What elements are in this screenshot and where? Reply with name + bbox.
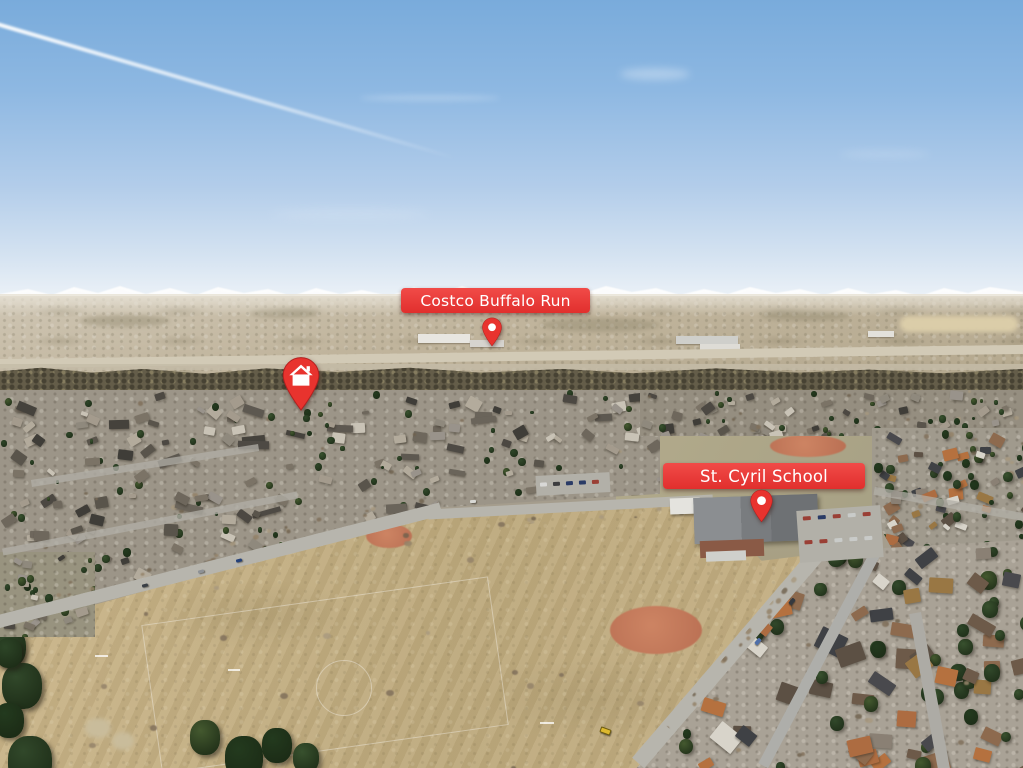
map-pin-icon <box>749 489 774 523</box>
school-entrance-roof <box>706 550 746 561</box>
aerial-photo-canvas: { "markers": { "costco": { "label": "Cos… <box>0 0 1023 768</box>
shrub-patch <box>540 318 660 332</box>
retail-building <box>868 331 894 337</box>
baseball-diamond <box>770 435 846 457</box>
shrub-patch <box>80 315 170 327</box>
car <box>470 500 476 503</box>
map-pin-icon <box>481 317 503 347</box>
home-pin-icon <box>281 356 321 412</box>
cloud-wisp <box>270 210 430 218</box>
contrail <box>0 20 456 160</box>
cloud-wisp <box>360 95 500 101</box>
parking-lot <box>536 472 611 496</box>
school-label: St. Cyril School <box>663 463 865 489</box>
frontage-road <box>0 364 1023 370</box>
pale-tree <box>85 718 111 738</box>
retail-building <box>418 334 470 343</box>
school-label-text: St. Cyril School <box>700 467 828 486</box>
cloud-wisp <box>620 68 690 80</box>
pale-tree <box>112 732 134 750</box>
cloud-wisp <box>840 150 930 158</box>
school-parking-lot <box>796 505 883 563</box>
costco-label-text: Costco Buffalo Run <box>420 292 570 310</box>
costco-label: Costco Buffalo Run <box>401 288 590 313</box>
sky <box>0 0 1023 302</box>
retail-building <box>676 336 738 344</box>
cleared-ground <box>900 316 1018 332</box>
